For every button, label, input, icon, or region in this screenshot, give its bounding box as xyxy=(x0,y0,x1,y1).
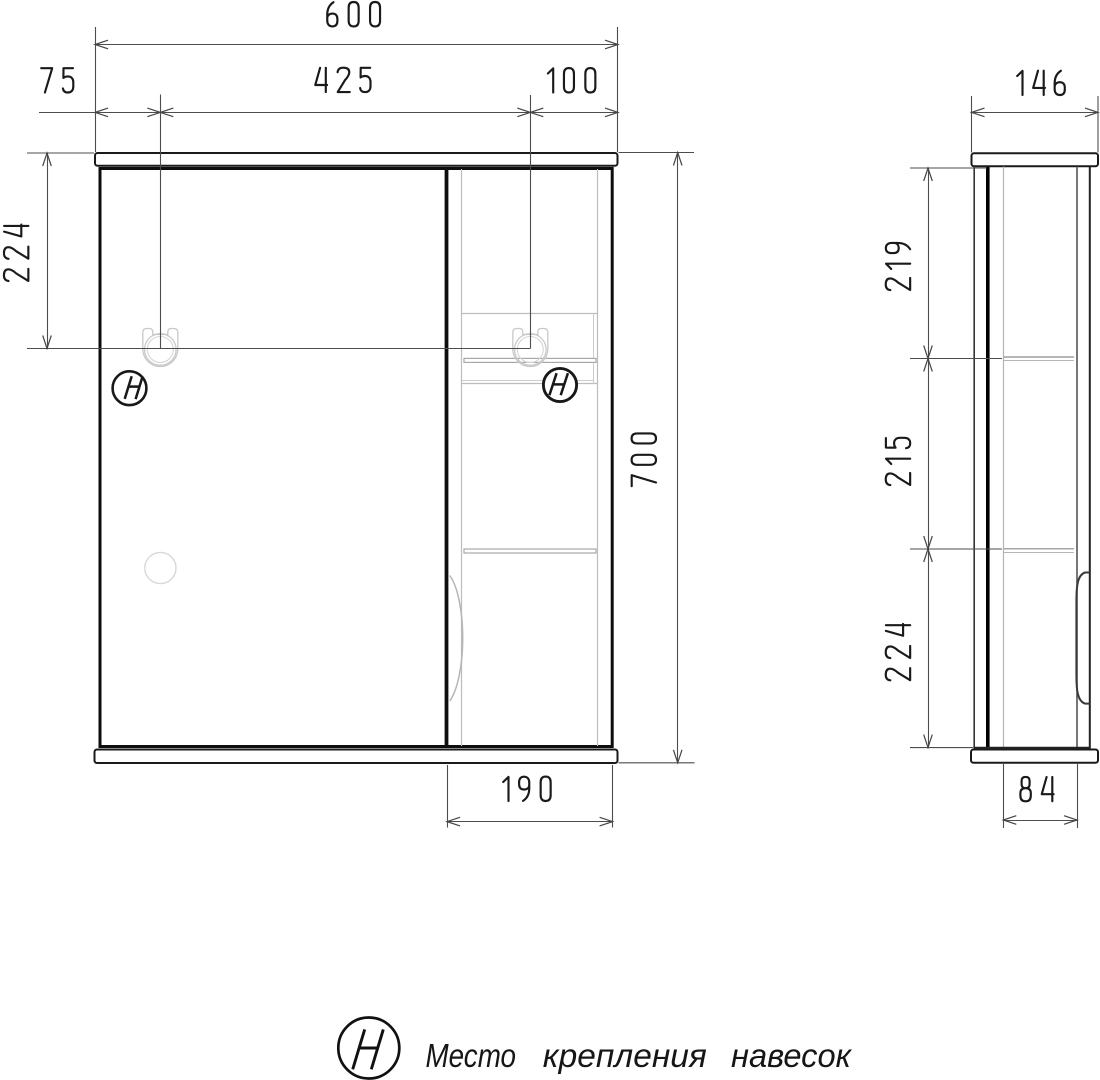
svg-text:Место: Место xyxy=(426,1037,517,1074)
svg-text:навесок: навесок xyxy=(731,1037,852,1074)
svg-text:крепления: крепления xyxy=(543,1037,707,1074)
